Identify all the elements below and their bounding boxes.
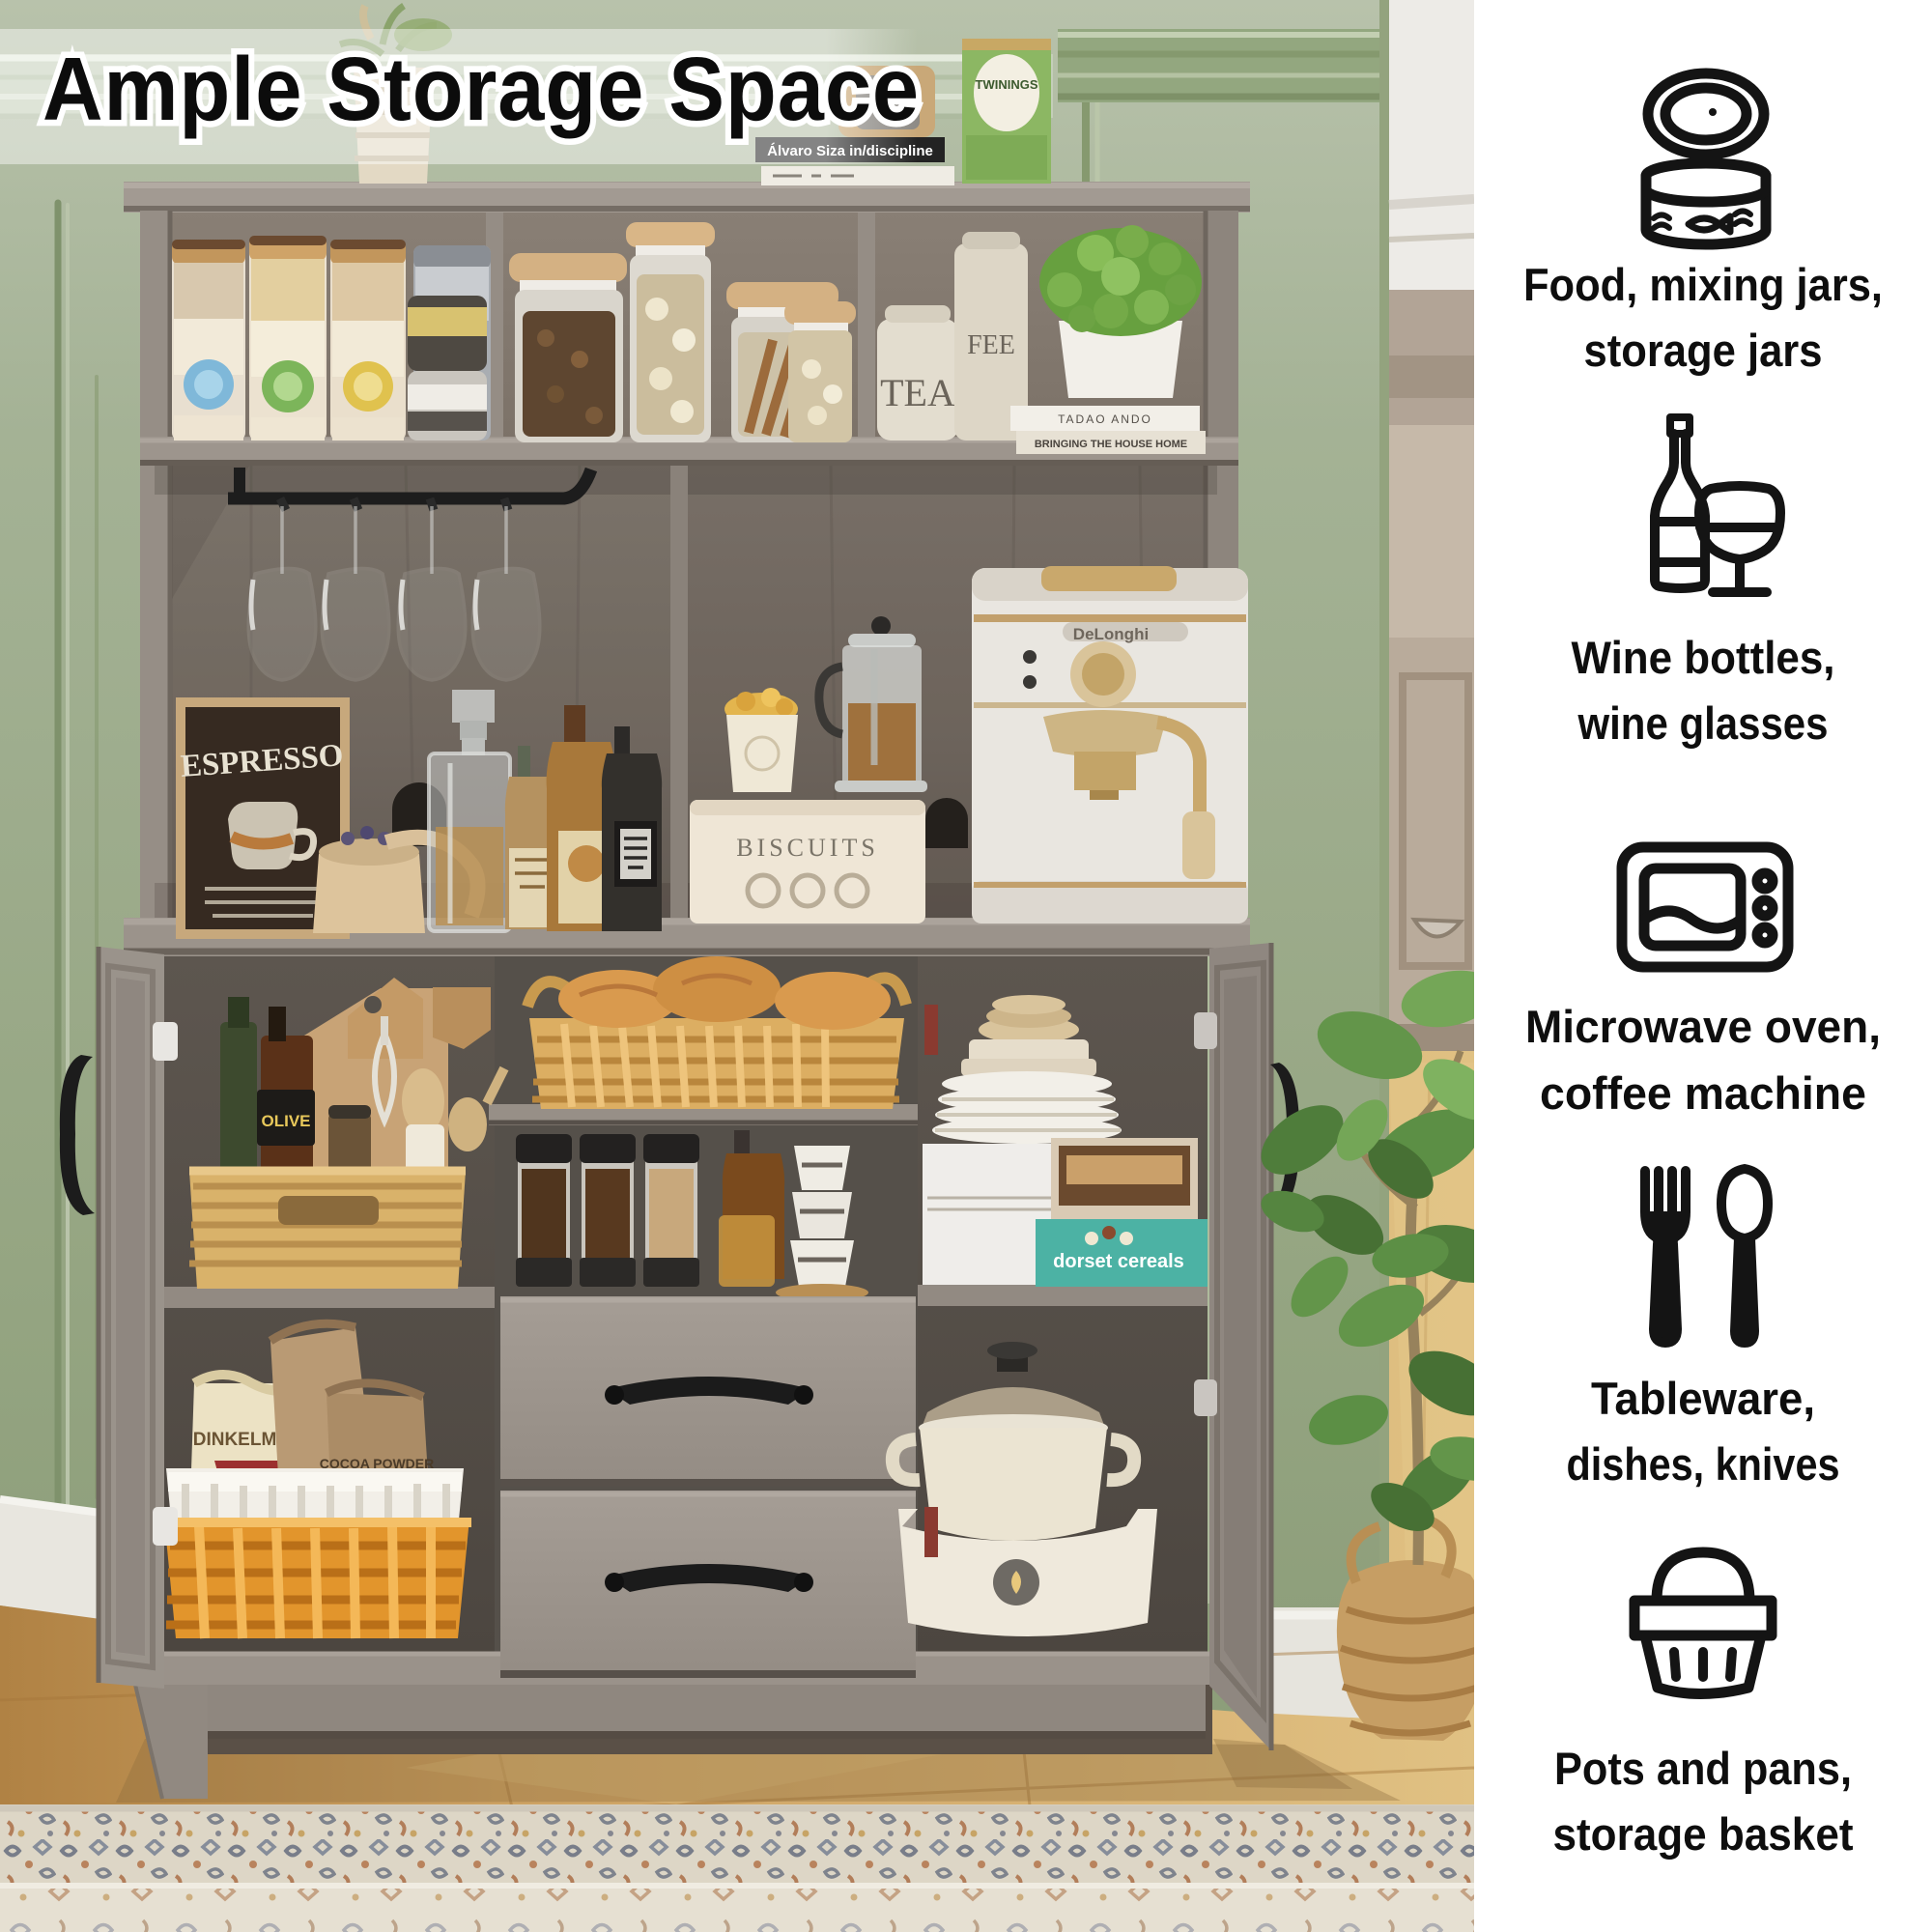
svg-text:TWININGS: TWININGS xyxy=(976,77,1038,92)
svg-text:Ample Storage Space: Ample Storage Space xyxy=(43,39,920,139)
svg-text:Tableware,: Tableware, xyxy=(1591,1373,1815,1424)
svg-text:DeLonghi: DeLonghi xyxy=(1073,625,1149,643)
svg-text:BRINGING THE HOUSE HOME: BRINGING THE HOUSE HOME xyxy=(1035,439,1187,450)
svg-text:Wine bottles,: Wine bottles, xyxy=(1572,632,1835,683)
svg-text:Pots and pans,: Pots and pans, xyxy=(1554,1743,1852,1794)
svg-text:OLIVE: OLIVE xyxy=(261,1112,310,1130)
svg-text:wine glasses: wine glasses xyxy=(1577,697,1829,749)
svg-text:storage jars: storage jars xyxy=(1584,325,1823,376)
svg-text:dishes, knives: dishes, knives xyxy=(1567,1438,1840,1490)
svg-text:coffee machine: coffee machine xyxy=(1540,1067,1866,1119)
svg-text:TEA: TEA xyxy=(880,371,955,414)
svg-text:Food, mixing jars,: Food, mixing jars, xyxy=(1523,259,1883,310)
svg-text:TADAO ANDO: TADAO ANDO xyxy=(1058,412,1152,426)
svg-text:storage basket: storage basket xyxy=(1553,1808,1854,1860)
svg-text:Microwave oven,: Microwave oven, xyxy=(1525,1001,1881,1052)
svg-text:FEE: FEE xyxy=(967,330,1015,360)
svg-text:BISCUITS: BISCUITS xyxy=(736,834,879,862)
svg-text:dorset cereals: dorset cereals xyxy=(1053,1251,1184,1272)
